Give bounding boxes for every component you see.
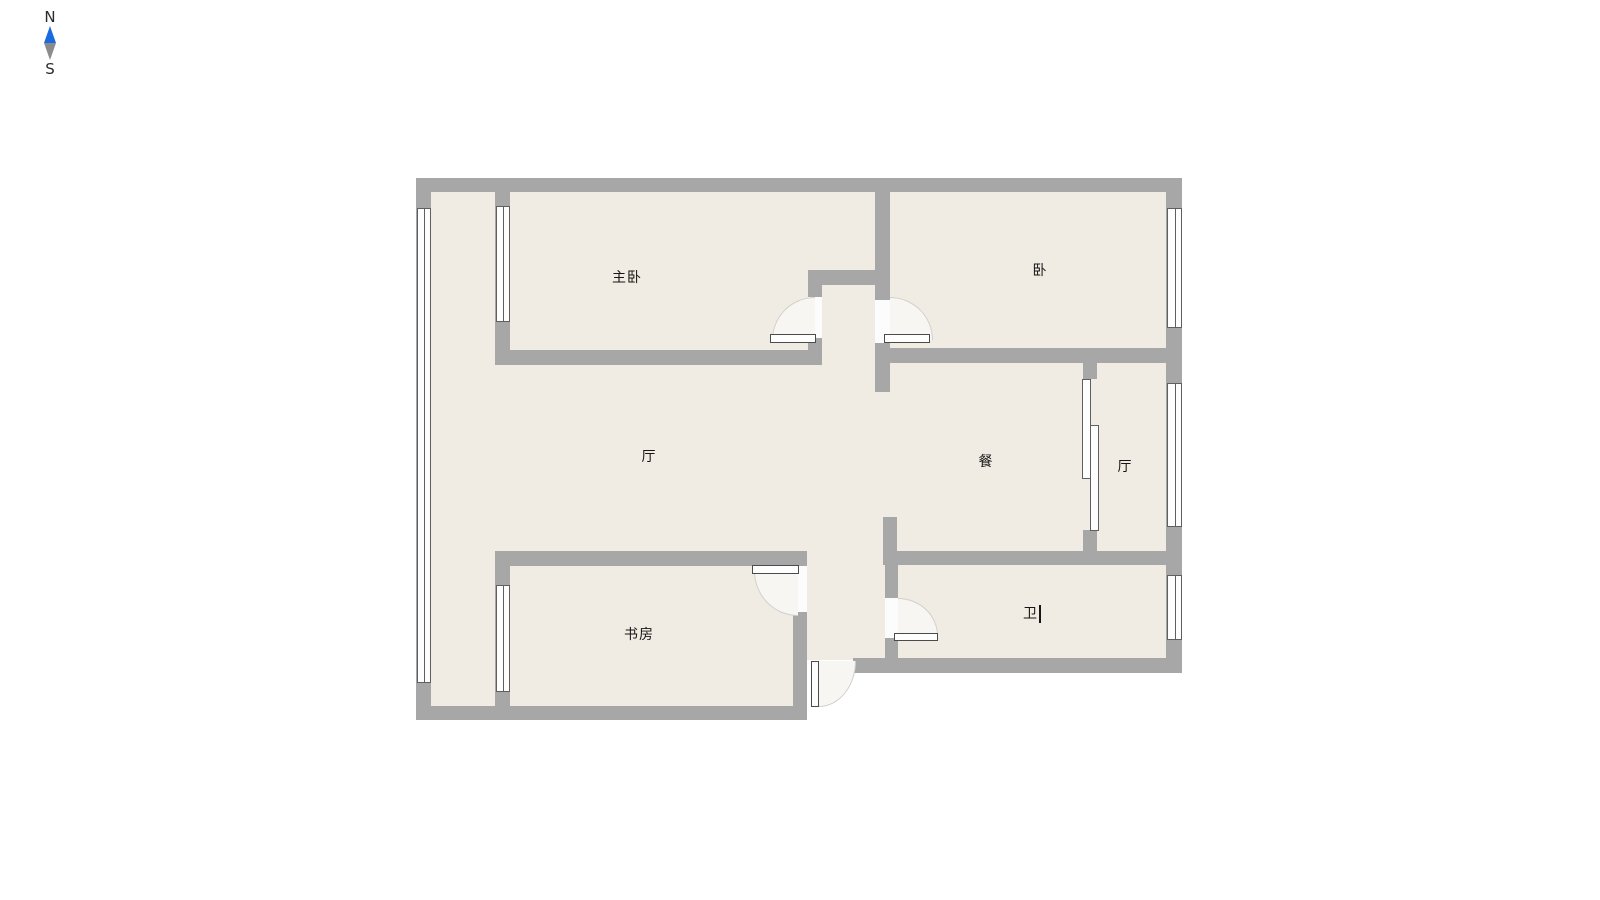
window[interactable] — [1167, 208, 1182, 328]
sliding-door-panel[interactable] — [1090, 425, 1099, 531]
window[interactable] — [496, 585, 510, 692]
bathroom-door-opening — [885, 598, 898, 638]
room-label-living-room[interactable]: 厅 — [642, 446, 657, 466]
room-label-bathroom-text: 卫 — [1023, 606, 1038, 622]
bathroom-door-leaf[interactable] — [894, 633, 938, 641]
wall-vestibule-top — [822, 270, 875, 285]
text-edit-cursor — [1039, 605, 1041, 623]
window[interactable] — [417, 208, 431, 683]
bedroom-door-leaf[interactable] — [884, 334, 930, 343]
compass-south-label: S — [34, 60, 66, 78]
wall-bath-left-lower — [885, 638, 898, 658]
wall-study-top — [495, 551, 807, 566]
wall-study-right — [793, 610, 807, 706]
wall-bedroom-bottom — [875, 348, 1182, 363]
room-label-study[interactable]: 书房 — [624, 624, 654, 644]
master-bedroom-door-leaf[interactable] — [770, 334, 816, 343]
room-label-dining-room[interactable]: 餐 — [979, 451, 994, 471]
floorplan-canvas: N S — [0, 0, 1600, 900]
north-arrow-icon — [44, 26, 56, 43]
compass-north-label: N — [34, 8, 66, 26]
wall-dining-bath — [883, 551, 1182, 565]
wall-master-bottom — [495, 350, 822, 365]
room-label-hall[interactable]: 厅 — [1118, 456, 1133, 476]
exterior-wall-bottom-right — [853, 658, 1182, 673]
compass-indicator: N S — [34, 8, 66, 78]
wall-bath-left-upper — [885, 565, 898, 598]
exterior-wall-top — [416, 178, 1182, 192]
south-arrow-icon — [44, 43, 56, 60]
window[interactable] — [1167, 383, 1182, 527]
wall-dining-hall-upper — [1083, 363, 1097, 379]
wall-dining-left-lower — [883, 517, 897, 551]
room-label-bathroom[interactable]: 卫 — [1023, 603, 1041, 623]
room-label-master-bedroom[interactable]: 主卧 — [612, 267, 642, 287]
outside-area — [855, 673, 1182, 720]
wall-master-right-upper — [808, 270, 822, 297]
window[interactable] — [496, 206, 510, 322]
window[interactable] — [1167, 575, 1182, 640]
room-label-bedroom[interactable]: 卧 — [1033, 260, 1048, 280]
wall-bedroom-left-upper — [875, 192, 890, 300]
study-door-leaf[interactable] — [752, 565, 799, 574]
entry-door-leaf[interactable] — [811, 661, 819, 707]
wall-dining-hall-lower — [1083, 530, 1097, 552]
exterior-wall-bottom-left — [416, 706, 807, 720]
